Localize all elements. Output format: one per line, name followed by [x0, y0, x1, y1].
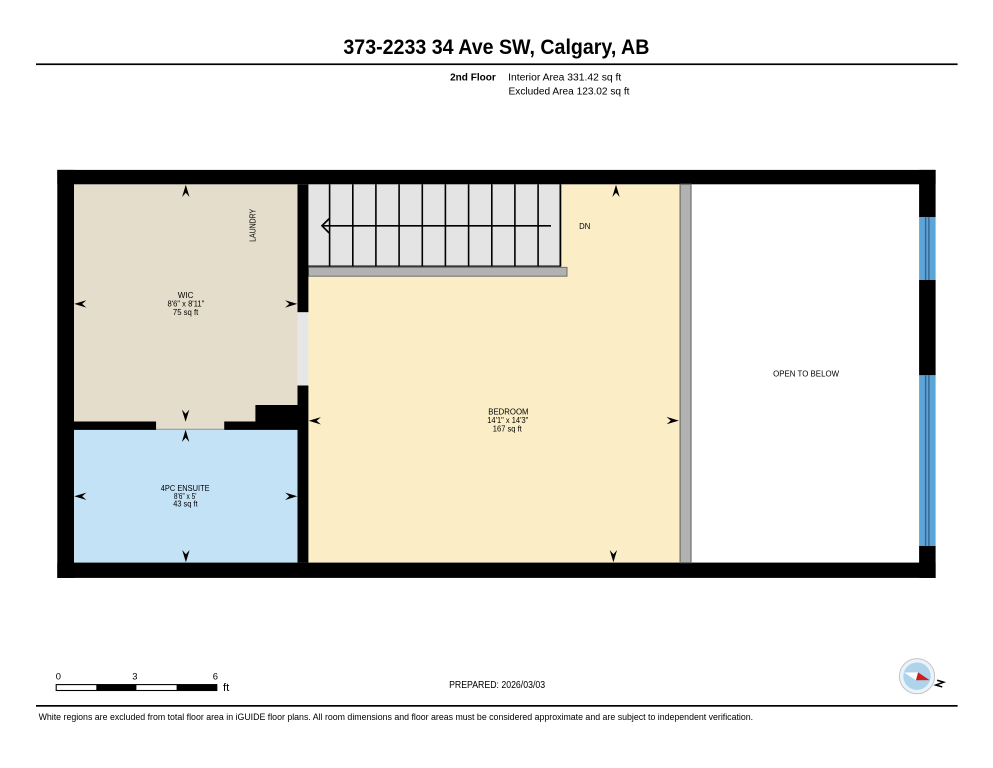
- svg-text:167 sq ft: 167 sq ft: [493, 424, 523, 433]
- svg-text:0: 0: [56, 671, 61, 682]
- svg-text:3: 3: [132, 671, 137, 682]
- svg-text:373-2233 34 Ave SW, Calgary, A: 373-2233 34 Ave SW, Calgary, AB: [343, 36, 649, 59]
- svg-text:2nd Floor: 2nd Floor: [450, 72, 496, 83]
- svg-text:6: 6: [213, 671, 218, 682]
- svg-text:PREPARED: 2026/03/03: PREPARED: 2026/03/03: [449, 680, 545, 691]
- svg-text:ft: ft: [223, 682, 230, 694]
- svg-text:White regions are excluded fro: White regions are excluded from total fl…: [39, 712, 754, 722]
- svg-text:Interior Area 331.42 sq ft: Interior Area 331.42 sq ft: [508, 72, 622, 83]
- svg-text:DN: DN: [579, 222, 590, 231]
- svg-text:Excluded Area 123.02 sq ft: Excluded Area 123.02 sq ft: [509, 86, 630, 97]
- svg-text:LAUNDRY: LAUNDRY: [248, 208, 257, 242]
- svg-text:75 sq ft: 75 sq ft: [173, 308, 199, 317]
- svg-text:OPEN TO BELOW: OPEN TO BELOW: [773, 370, 840, 379]
- svg-text:43 sq ft: 43 sq ft: [173, 500, 198, 509]
